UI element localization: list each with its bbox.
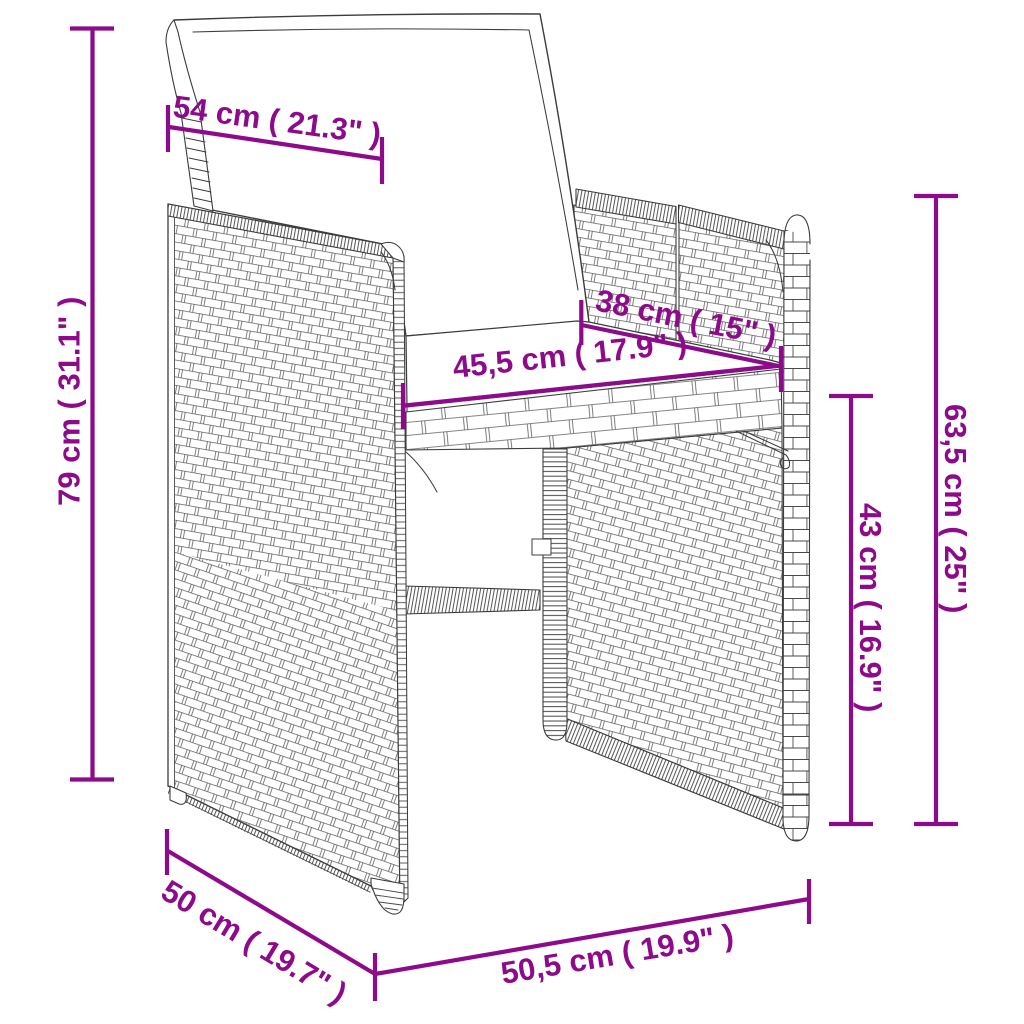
svg-text:43 cm ( 16.9" ): 43 cm ( 16.9" ) bbox=[853, 503, 888, 712]
svg-text:63,5 cm ( 25" ): 63,5 cm ( 25" ) bbox=[938, 404, 973, 613]
svg-text:79 cm ( 31.1" ): 79 cm ( 31.1" ) bbox=[52, 297, 87, 506]
